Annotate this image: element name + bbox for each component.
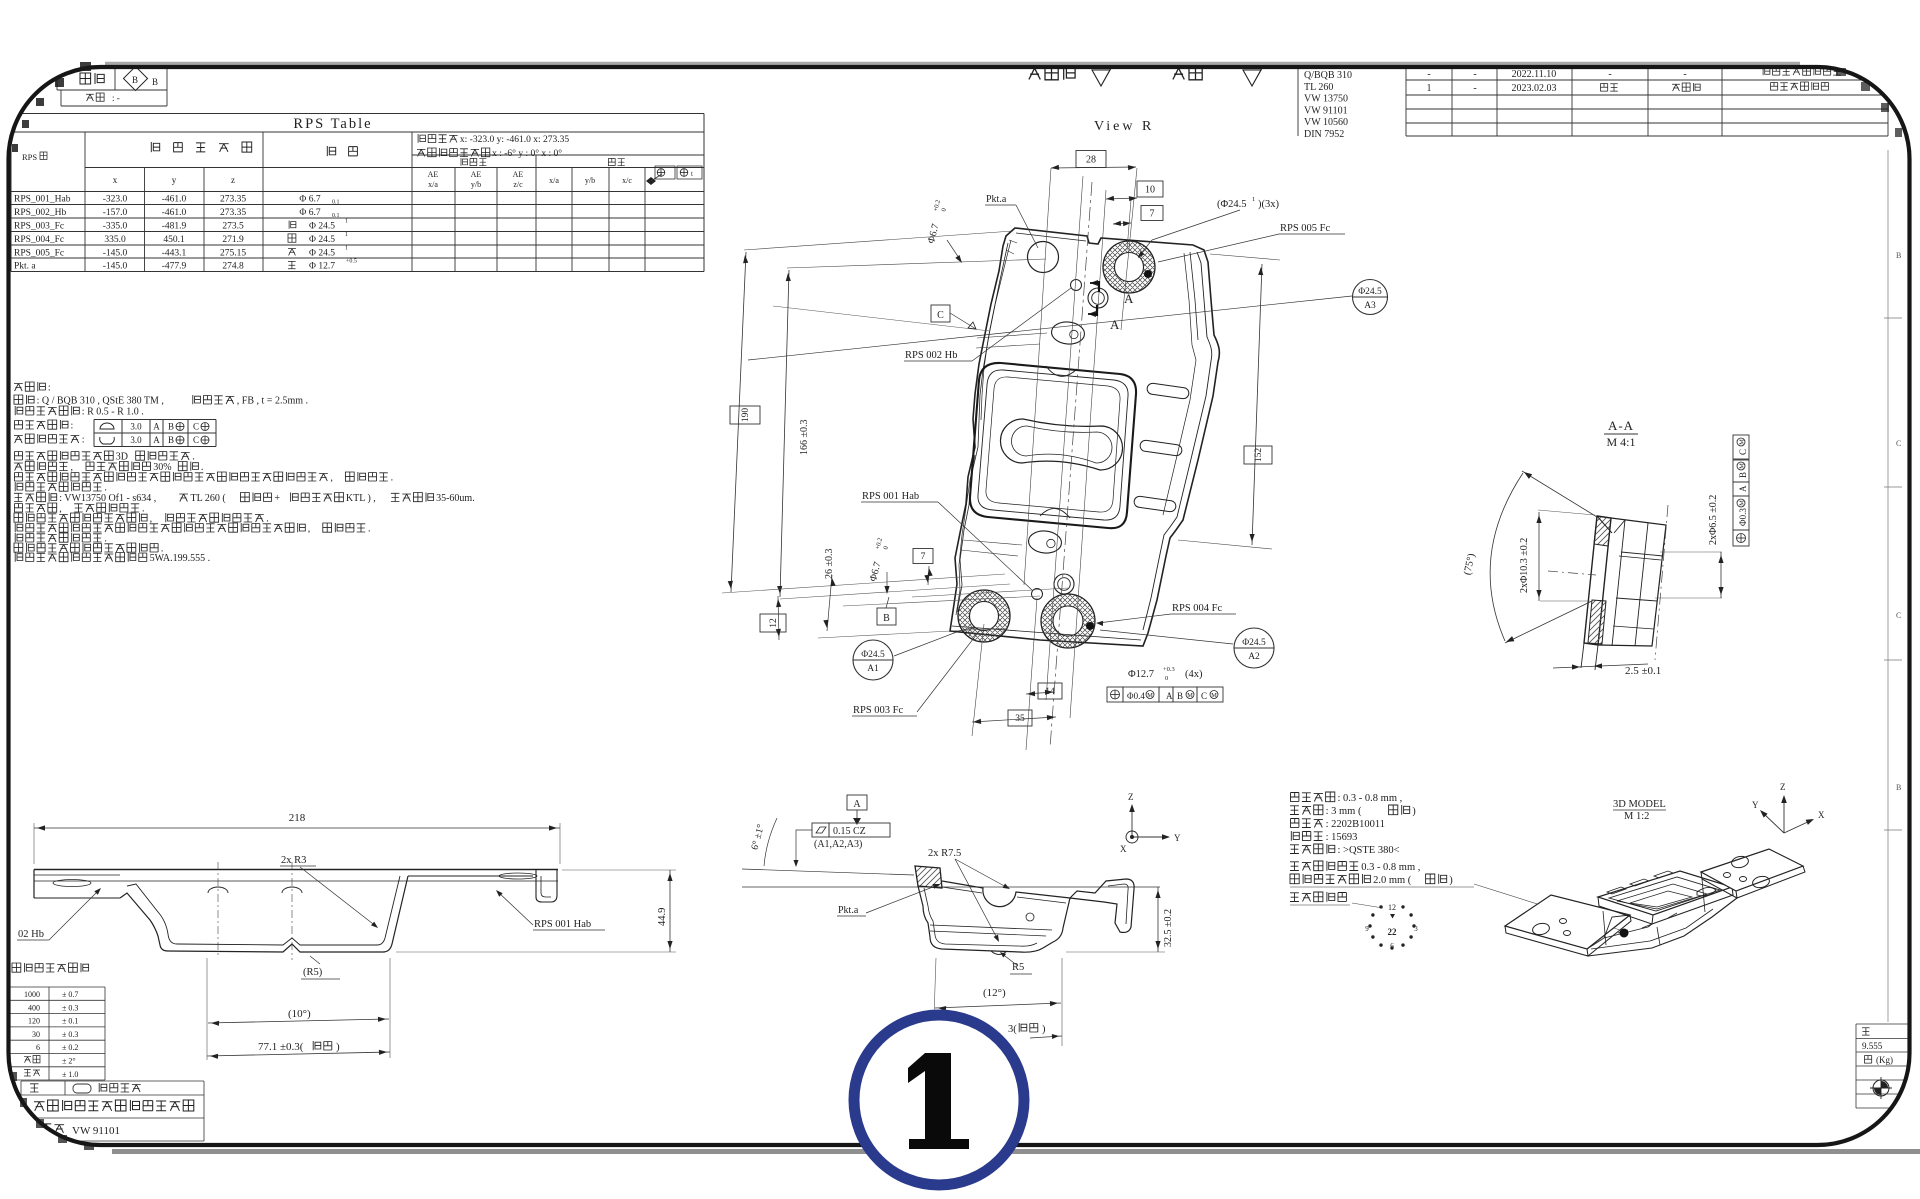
svg-text:M: M (1187, 692, 1193, 699)
svg-text:5WA.199.555 .: 5WA.199.555 . (150, 553, 211, 564)
svg-text:Φ 6.7: Φ 6.7 (299, 208, 320, 218)
svg-text::: : (48, 383, 51, 394)
svg-text:y/b: y/b (471, 180, 481, 189)
svg-text:3D: 3D (116, 452, 128, 463)
svg-text:B: B (1177, 691, 1183, 701)
svg-text:RPS_005_Fc: RPS_005_Fc (14, 248, 64, 258)
svg-text:x/c: x/c (622, 176, 632, 185)
svg-text:1: 1 (345, 219, 348, 225)
svg-text:9: 9 (1365, 925, 1369, 933)
svg-text:12: 12 (769, 618, 779, 628)
svg-text:): ) (1042, 1024, 1046, 1035)
svg-text:A-A: A-A (1608, 418, 1634, 433)
svg-text:B: B (152, 77, 158, 87)
svg-text:+0.3: +0.3 (1163, 666, 1175, 673)
svg-text:-461.0: -461.0 (162, 208, 187, 218)
svg-text:): ) (1412, 806, 1416, 817)
svg-text:2.0 mm (: 2.0 mm ( (1373, 875, 1412, 886)
svg-text:0: 0 (1165, 675, 1168, 682)
svg-text:3(: 3( (1008, 1024, 1017, 1035)
svg-text:RPS_002_Hb: RPS_002_Hb (14, 208, 67, 218)
svg-text:44.9: 44.9 (657, 908, 668, 926)
svg-text:B: B (168, 422, 174, 432)
svg-text:VW 91101: VW 91101 (1304, 105, 1348, 116)
svg-text:.: . (201, 462, 204, 473)
svg-text:B: B (1738, 472, 1748, 478)
svg-text:-145.0: -145.0 (103, 262, 128, 272)
svg-text:28: 28 (1086, 154, 1096, 165)
svg-text:± 0.2: ± 0.2 (62, 1043, 78, 1052)
svg-text:A3: A3 (1364, 301, 1376, 311)
svg-text:Φ24.5: Φ24.5 (1358, 287, 1382, 297)
svg-text:(Φ24.5: (Φ24.5 (1217, 199, 1247, 210)
svg-text:Φ 24.5: Φ 24.5 (309, 235, 335, 245)
svg-text:0.3 - 0.8 mm ,: 0.3 - 0.8 mm , (1361, 862, 1420, 873)
svg-text:Φ 6.7: Φ 6.7 (299, 195, 320, 205)
svg-text:Pkt.a: Pkt.a (838, 905, 859, 916)
svg-text:12: 12 (1388, 903, 1396, 912)
svg-text:Pkt.a: Pkt.a (986, 194, 1007, 205)
svg-text:Φ 12.7: Φ 12.7 (309, 262, 335, 272)
svg-text:273.5: 273.5 (222, 222, 244, 232)
svg-text:120: 120 (28, 1017, 40, 1026)
svg-text:A: A (1124, 291, 1134, 306)
svg-text:Φ 24.5: Φ 24.5 (309, 222, 335, 232)
svg-text:2.5 ±0.1: 2.5 ±0.1 (1625, 665, 1661, 677)
svg-text:RPS Table: RPS Table (293, 116, 372, 132)
svg-text:x/a: x/a (428, 180, 438, 189)
svg-text:02 Hb: 02 Hb (18, 929, 44, 940)
svg-text:2x R3: 2x R3 (281, 855, 306, 866)
svg-text:± 1.0: ± 1.0 (62, 1070, 78, 1079)
svg-text:-: - (1683, 69, 1686, 80)
svg-text:275.15: 275.15 (220, 248, 246, 258)
svg-text:(10°): (10°) (288, 1008, 311, 1020)
svg-text:RPS: RPS (22, 152, 37, 162)
svg-text:M: M (1739, 500, 1746, 506)
svg-text:Z: Z (1780, 782, 1786, 792)
svg-text:1: 1 (345, 232, 348, 238)
svg-text:30: 30 (32, 1030, 40, 1039)
svg-text:35-60um.: 35-60um. (436, 493, 475, 504)
svg-text:: 2202B10011: : 2202B10011 (1326, 819, 1385, 830)
svg-text:77.1 ±0.3(: 77.1 ±0.3( (258, 1041, 304, 1053)
svg-text:6: 6 (1390, 942, 1394, 950)
svg-text:,: , (71, 462, 74, 473)
svg-text:M 4:1: M 4:1 (1606, 435, 1635, 449)
svg-text:,: , (308, 524, 311, 535)
svg-text:)(3x): )(3x) (1258, 199, 1279, 210)
svg-text:190: 190 (741, 408, 751, 423)
svg-text:Φ0.4: Φ0.4 (1127, 691, 1145, 701)
svg-text:C: C (1201, 691, 1207, 701)
svg-text:.: . (142, 504, 145, 515)
svg-text:Pkt. a: Pkt. a (14, 262, 36, 272)
svg-text:2xΦ6.5 ±0.2: 2xΦ6.5 ±0.2 (1708, 495, 1719, 545)
svg-text:450.1: 450.1 (163, 235, 185, 245)
svg-text:(A1,A2,A3): (A1,A2,A3) (814, 839, 862, 850)
svg-text:271.9: 271.9 (222, 235, 244, 245)
svg-text:-481.9: -481.9 (162, 222, 187, 232)
svg-text:C: C (193, 435, 199, 445)
svg-text:3: 3 (1414, 925, 1418, 933)
svg-text:,: , (150, 514, 153, 525)
svg-text:Q/BQB 310: Q/BQB 310 (1304, 70, 1352, 81)
svg-text:-443.1: -443.1 (162, 248, 187, 258)
svg-text:: R 0.5 - R 1.0 .: : R 0.5 - R 1.0 . (82, 407, 144, 418)
svg-text:A2: A2 (1248, 652, 1260, 662)
svg-text:y/b: y/b (585, 176, 595, 185)
svg-text:B: B (168, 435, 174, 445)
svg-text:-323.0: -323.0 (103, 195, 128, 205)
svg-text:0.1: 0.1 (332, 213, 340, 219)
svg-text:X: X (1818, 810, 1825, 820)
svg-text:AE: AE (471, 170, 482, 179)
svg-text:(Kg): (Kg) (1876, 1055, 1893, 1065)
svg-text:.: . (391, 473, 394, 484)
svg-text:C: C (1738, 449, 1748, 455)
svg-text:+0.5: +0.5 (346, 259, 357, 265)
svg-text:152: 152 (1254, 448, 1264, 463)
svg-text:x/a: x/a (549, 176, 559, 185)
svg-text:Z: Z (1128, 792, 1134, 802)
svg-text:± 0.3: ± 0.3 (62, 1003, 78, 1012)
svg-text:: VW13750 Of1 - s634 ,: : VW13750 Of1 - s634 , (59, 493, 156, 504)
svg-text:RPS_004_Fc: RPS_004_Fc (14, 235, 64, 245)
svg-text:-: - (1427, 69, 1430, 80)
svg-text:218: 218 (289, 812, 306, 824)
svg-text:C: C (937, 310, 944, 321)
svg-text:.: . (104, 534, 107, 545)
svg-text:,: , (59, 504, 62, 515)
svg-text:2x R7.5: 2x R7.5 (928, 848, 961, 859)
svg-text:M: M (1211, 692, 1217, 699)
svg-text:TL 260 (: TL 260 ( (191, 493, 227, 504)
svg-text:(R5): (R5) (303, 967, 323, 978)
svg-text:z: z (231, 175, 235, 185)
svg-text:z/c: z/c (513, 180, 523, 189)
svg-text:C: C (193, 422, 199, 432)
svg-text:RPS 002 Hb: RPS 002 Hb (905, 350, 958, 361)
svg-text:Φ 24.5: Φ 24.5 (309, 248, 335, 258)
svg-text:TL 260: TL 260 (1304, 82, 1333, 93)
svg-text:Y: Y (1752, 800, 1759, 810)
svg-text:, FB , t = 2.5mm .: , FB , t = 2.5mm . (237, 396, 308, 407)
svg-text:+: + (274, 493, 280, 504)
svg-text:A: A (1166, 691, 1173, 701)
svg-text:-145.0: -145.0 (103, 248, 128, 258)
svg-text:3.0: 3.0 (130, 435, 142, 445)
svg-text:B: B (1896, 251, 1901, 260)
svg-text:7: 7 (921, 552, 926, 562)
svg-text:: -: : - (112, 93, 120, 103)
svg-text:: 15693: : 15693 (1326, 832, 1358, 843)
svg-text:RPS 001 Hab: RPS 001 Hab (534, 919, 591, 930)
svg-text:y: y (172, 175, 177, 185)
svg-text:: >QSTE 380<: : >QSTE 380< (1338, 845, 1400, 856)
svg-text:-: - (1473, 83, 1476, 94)
svg-text:B: B (132, 75, 138, 85)
svg-text:0.1: 0.1 (332, 200, 340, 206)
svg-text:-477.9: -477.9 (162, 262, 187, 272)
svg-text:B: B (883, 613, 890, 624)
svg-text:0.15 CZ: 0.15 CZ (833, 826, 866, 837)
svg-text:A: A (853, 799, 861, 810)
svg-text:.: . (266, 514, 269, 525)
svg-text:-: - (1608, 69, 1611, 80)
svg-text:x: -323.0 y: -461.0 x: 273.35: x: -323.0 y: -461.0 x: 273.35 (460, 135, 569, 145)
svg-text:32.5 ±0.2: 32.5 ±0.2 (1163, 909, 1174, 947)
svg-text:30%: 30% (153, 462, 171, 473)
svg-text:RPS 004 Fc: RPS 004 Fc (1172, 603, 1223, 614)
svg-text:1000: 1000 (24, 990, 40, 999)
svg-text:M: M (1739, 463, 1746, 469)
svg-text:A: A (153, 435, 160, 445)
svg-text::: : (82, 435, 85, 446)
svg-text:335.0: 335.0 (104, 235, 126, 245)
svg-text:DIN 7952: DIN 7952 (1304, 129, 1344, 140)
svg-text:(4x): (4x) (1185, 669, 1203, 680)
svg-text:C: C (1896, 611, 1901, 620)
svg-text:Φ24.5: Φ24.5 (861, 650, 885, 660)
svg-text:Φ0.3: Φ0.3 (1738, 508, 1748, 526)
svg-text:View R: View R (1094, 119, 1154, 134)
svg-text:10: 10 (1145, 184, 1155, 195)
svg-text:A: A (1738, 485, 1748, 492)
svg-text:(12°): (12°) (983, 987, 1006, 999)
svg-text:3D MODEL: 3D MODEL (1613, 799, 1666, 810)
svg-text:273.35: 273.35 (220, 195, 246, 205)
svg-text:RPS 001 Hab: RPS 001 Hab (862, 491, 919, 502)
svg-text:x: x (113, 175, 118, 185)
svg-text:1: 1 (1252, 196, 1255, 203)
svg-text:6: 6 (36, 1043, 40, 1052)
svg-text:400: 400 (28, 1003, 40, 1012)
svg-text:2022.11.10: 2022.11.10 (1512, 69, 1557, 80)
svg-text:± 2°: ± 2° (62, 1057, 76, 1066)
svg-text:RPS 005 Fc: RPS 005 Fc (1280, 223, 1331, 234)
svg-text:C: C (1896, 439, 1901, 448)
svg-text:M: M (1147, 692, 1153, 699)
svg-text:-335.0: -335.0 (103, 222, 128, 232)
svg-text:.: . (192, 452, 195, 463)
svg-text:.: . (104, 483, 107, 494)
svg-text:1: 1 (1427, 83, 1432, 94)
svg-text:t: t (691, 170, 693, 178)
svg-text:VW 13750: VW 13750 (1304, 94, 1348, 105)
svg-text:1: 1 (345, 245, 348, 251)
svg-text:A1: A1 (867, 664, 879, 674)
svg-text:Y: Y (1174, 833, 1181, 843)
svg-text:RPS 003 Fc: RPS 003 Fc (853, 705, 904, 716)
svg-text:-: - (1473, 69, 1476, 80)
svg-text:9.555: 9.555 (1862, 1041, 1883, 1051)
svg-text:274.8: 274.8 (222, 262, 244, 272)
svg-text:A: A (153, 422, 160, 432)
svg-text:VW 10560: VW 10560 (1304, 117, 1348, 128)
svg-text::: : (71, 421, 74, 432)
svg-text:.: . (368, 524, 371, 535)
svg-text:± 0.7: ± 0.7 (62, 990, 78, 999)
svg-text:273.35: 273.35 (220, 208, 246, 218)
svg-text:± 0.3: ± 0.3 (62, 1030, 78, 1039)
svg-text:166 ±0.3: 166 ±0.3 (799, 420, 810, 456)
svg-text:26 ±0.3: 26 ±0.3 (824, 549, 835, 580)
svg-text:x : -6° y : 0° x : 0°: x : -6° y : 0° x : 0° (492, 148, 562, 159)
svg-text:7: 7 (1150, 208, 1155, 219)
svg-text:-461.0: -461.0 (162, 195, 187, 205)
svg-text:AE: AE (513, 170, 524, 179)
svg-text:X: X (1120, 844, 1127, 854)
svg-text:: 3 mm (: : 3 mm ( (1326, 806, 1362, 817)
svg-text:RPS_003_Fc: RPS_003_Fc (14, 222, 64, 232)
svg-text:2023.02.03: 2023.02.03 (1512, 83, 1557, 94)
svg-text:A: A (1110, 317, 1120, 332)
svg-text:± 0.1: ± 0.1 (62, 1017, 78, 1026)
svg-text:: Q / BQB 310 , QStE 380 TM ,: : Q / BQB 310 , QStE 380 TM , (37, 396, 164, 407)
svg-text:VW 91101: VW 91101 (72, 1125, 120, 1137)
svg-text:Φ24.5: Φ24.5 (1242, 638, 1266, 648)
svg-text:: 0.3 - 0.8 mm ,: : 0.3 - 0.8 mm , (1338, 793, 1403, 804)
svg-text:): ) (336, 1041, 340, 1053)
svg-text:2xΦ10.3 ±0.2: 2xΦ10.3 ±0.2 (1519, 538, 1530, 593)
svg-text:B: B (1896, 783, 1901, 792)
svg-text:Φ12.7: Φ12.7 (1128, 669, 1154, 680)
svg-text:M 1:2: M 1:2 (1624, 811, 1649, 822)
svg-text:,: , (330, 473, 333, 484)
svg-text:R5: R5 (1012, 962, 1024, 973)
svg-text:): ) (1449, 875, 1453, 886)
svg-text:RPS_001_Hab: RPS_001_Hab (14, 195, 71, 205)
svg-text:AE: AE (428, 170, 439, 179)
svg-text:3.0: 3.0 (130, 422, 142, 432)
svg-text:M: M (1739, 439, 1746, 445)
svg-text:KTL ) ,: KTL ) , (346, 493, 376, 504)
svg-text:22: 22 (1388, 927, 1398, 937)
svg-text:-157.0: -157.0 (103, 208, 128, 218)
